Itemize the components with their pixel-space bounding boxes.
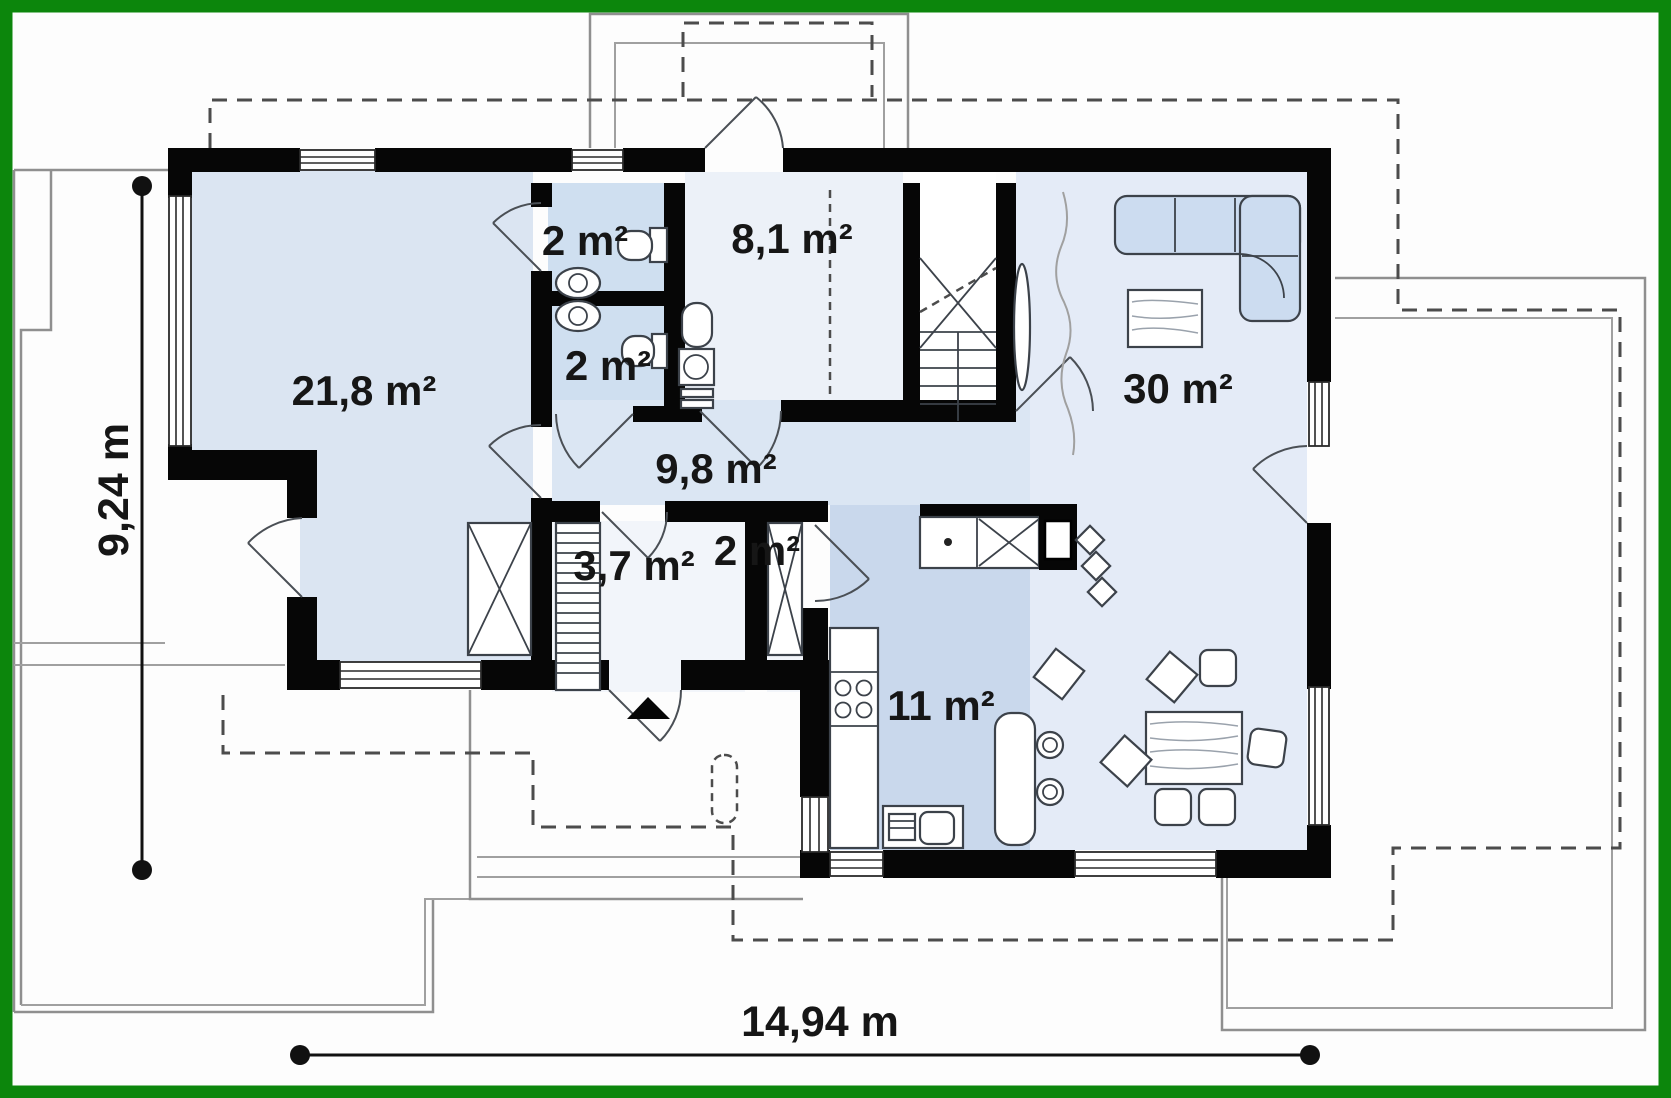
floor-plan-page: 2 m² 8,1 m² 21,8 m² 2 m² 9,8 m² 30 m² 3,… [0, 0, 1671, 1098]
room-label-kitchen: 11 m² [887, 682, 994, 729]
radiator [1014, 264, 1030, 390]
kitchen-counter-left [830, 628, 878, 848]
window-left [169, 196, 191, 446]
washbasin-bottom [556, 301, 600, 331]
room-label-living: 30 m² [1123, 365, 1233, 412]
dimension-depth-label: 9,24 m [90, 423, 138, 557]
kitchen-counter-top [920, 517, 1039, 568]
window-top-1 [300, 150, 375, 170]
window-kitchen-corner [830, 852, 883, 876]
wardrobe-bedroom [468, 523, 531, 655]
room-label-hallway: 9,8 m² [655, 445, 776, 492]
window-kitchen-left [802, 797, 828, 852]
room-label-8-1: 8,1 m² [731, 215, 852, 262]
kitchen-sink-unit [883, 806, 963, 848]
sink-drain-dot [944, 538, 952, 546]
dimension-width-label: 14,94 m [741, 998, 899, 1046]
window-living-right [1309, 382, 1329, 446]
room81-floor [685, 172, 903, 404]
room-label-dressing: 3,7 m² [573, 542, 694, 589]
dining-table [1146, 712, 1242, 784]
room-label-bathroom-top: 2 m² [542, 217, 628, 264]
washbasin-top [556, 268, 600, 298]
water-heater [679, 303, 714, 408]
room-label-bathroom-bottom: 2 m² [565, 342, 651, 389]
window-top-2 [572, 150, 623, 170]
window-dining-right [1309, 687, 1329, 825]
window-dining-bottom [1075, 852, 1216, 876]
window-bedroom-bottom [340, 662, 481, 688]
room-label-bedroom: 21,8 m² [292, 367, 437, 414]
floor-plan-drawing: 2 m² 8,1 m² 21,8 m² 2 m² 9,8 m² 30 m² 3,… [0, 0, 1671, 1098]
room-label-closet: 2 m² [714, 527, 800, 574]
coffee-table [1128, 290, 1202, 347]
kitchen-fridge [1045, 521, 1071, 559]
